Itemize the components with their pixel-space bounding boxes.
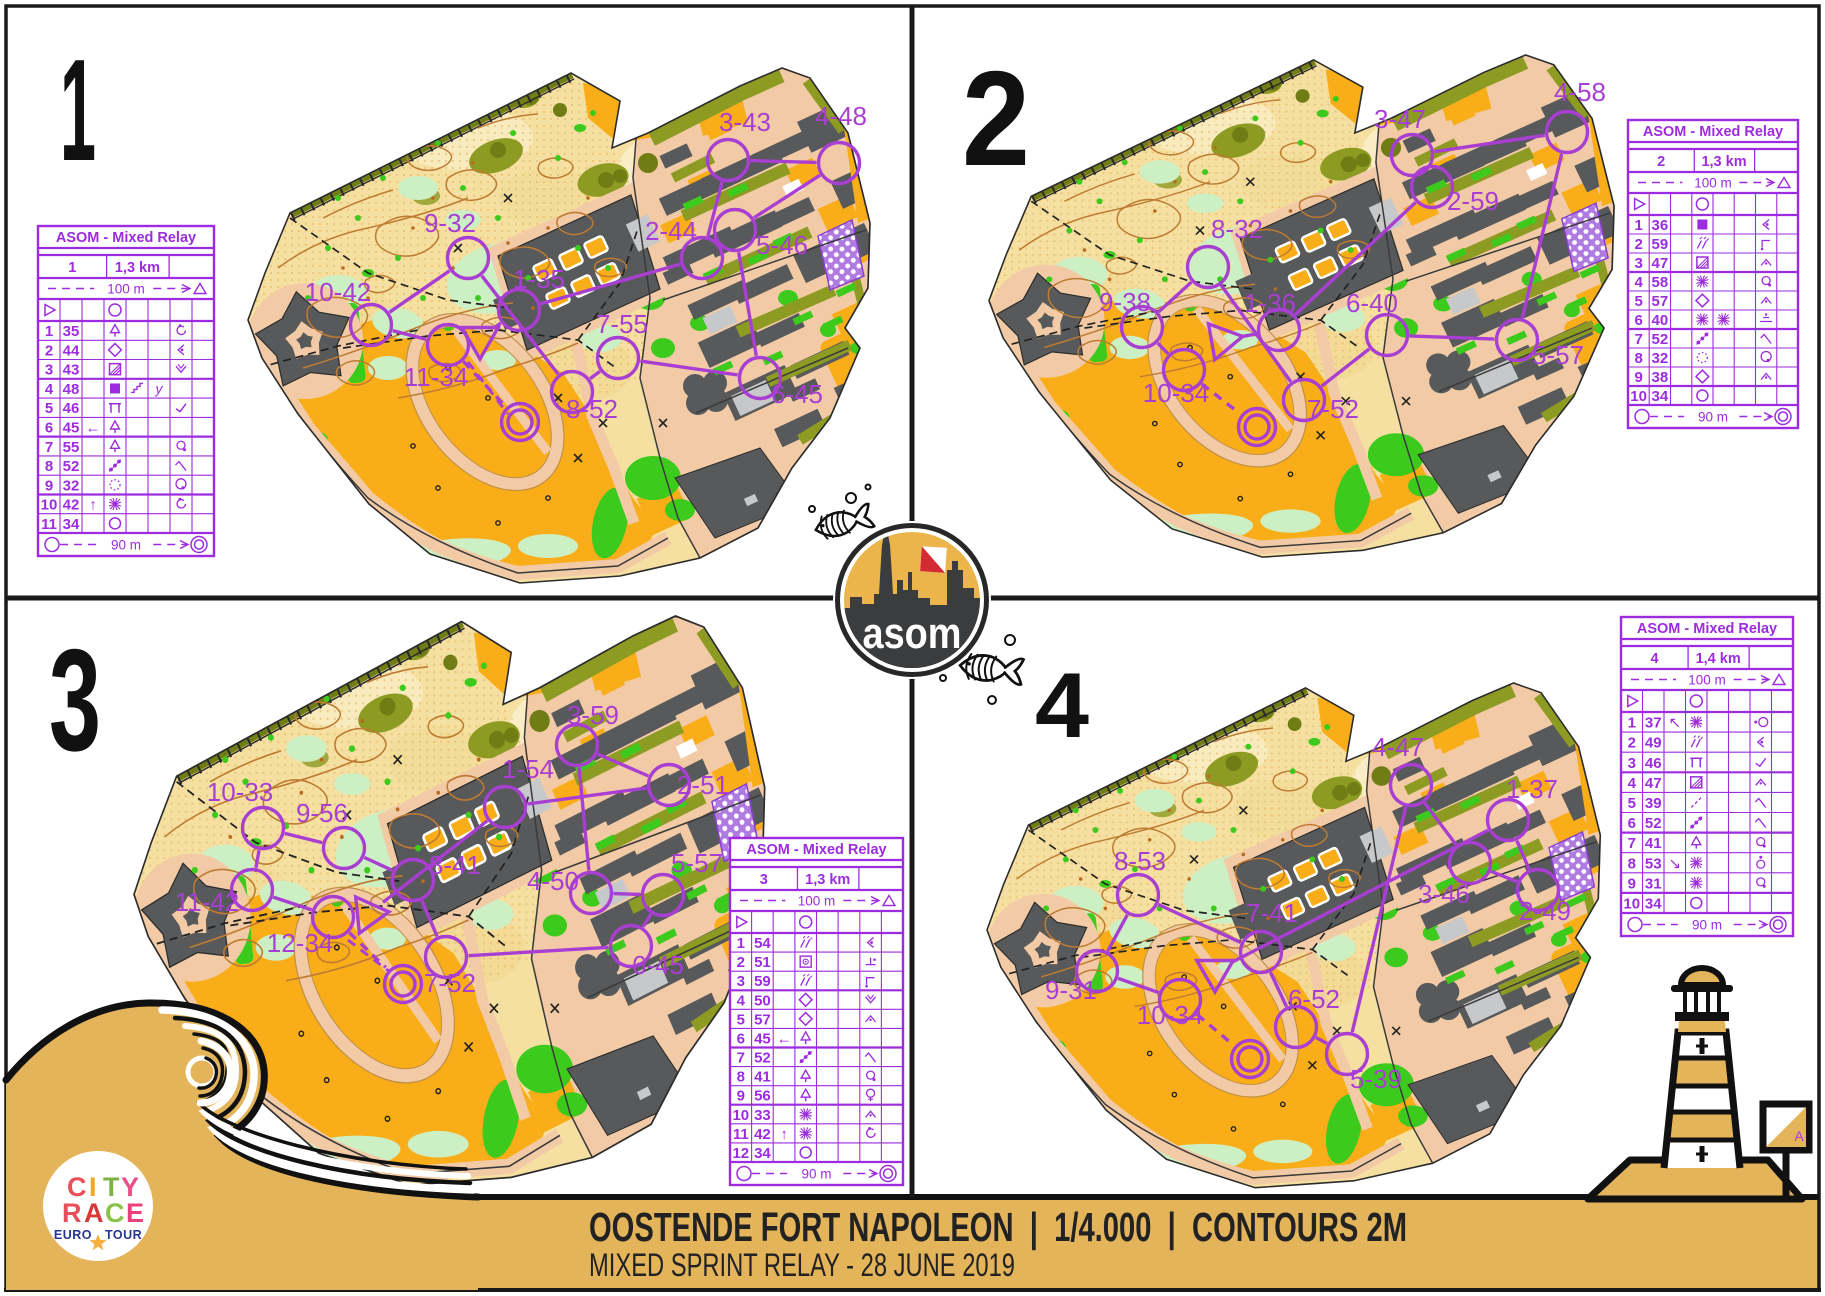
svg-text:2-49: 2-49 [1519, 896, 1571, 926]
svg-text:53: 53 [1645, 855, 1662, 872]
svg-text:3: 3 [45, 362, 53, 379]
svg-text:3: 3 [1628, 755, 1636, 772]
svg-text:11: 11 [41, 516, 57, 533]
svg-text:8: 8 [45, 458, 53, 475]
svg-text:10-33: 10-33 [207, 777, 274, 807]
svg-text:1-37: 1-37 [1506, 774, 1558, 804]
svg-text:9-32: 9-32 [424, 208, 476, 238]
svg-text:44: 44 [63, 342, 80, 359]
svg-text:7: 7 [737, 1050, 745, 1067]
svg-text:54: 54 [754, 935, 771, 952]
svg-text:6: 6 [45, 420, 53, 437]
svg-text:1,3 km: 1,3 km [805, 872, 850, 888]
svg-text:41: 41 [1645, 835, 1662, 852]
svg-text:↑: ↑ [780, 1126, 788, 1143]
svg-text:7-55: 7-55 [596, 309, 648, 339]
svg-text:90 m: 90 m [111, 538, 141, 553]
svg-text:10-42: 10-42 [305, 277, 372, 307]
svg-text:43: 43 [63, 362, 80, 379]
svg-text:1: 1 [45, 323, 53, 340]
svg-text:E: E [126, 1198, 145, 1228]
svg-text:90 m: 90 m [801, 1167, 831, 1182]
svg-text:4: 4 [1628, 775, 1637, 792]
svg-text:2-51: 2-51 [677, 770, 729, 800]
svg-text:7-52: 7-52 [1307, 394, 1359, 424]
svg-text:11-42: 11-42 [175, 887, 240, 917]
svg-text:5-46: 5-46 [756, 230, 808, 260]
svg-text:52: 52 [63, 458, 80, 475]
svg-text:6: 6 [1628, 815, 1636, 832]
svg-text:52: 52 [1652, 331, 1669, 348]
svg-text:5: 5 [1634, 293, 1642, 310]
svg-text:ASOM - Mixed Relay: ASOM - Mixed Relay [1637, 621, 1777, 637]
svg-text:5-57: 5-57 [671, 848, 723, 878]
svg-text:8-53: 8-53 [1114, 846, 1166, 876]
svg-text:46: 46 [63, 400, 80, 417]
svg-text:10-34: 10-34 [1143, 378, 1210, 408]
svg-text:47: 47 [1652, 255, 1669, 272]
svg-text:4-48: 4-48 [815, 101, 867, 131]
svg-text:6: 6 [1634, 312, 1642, 329]
svg-text:↘: ↘ [1668, 855, 1681, 872]
svg-text:45: 45 [63, 420, 80, 437]
svg-text:2: 2 [1634, 236, 1642, 253]
svg-text:49: 49 [1645, 735, 1662, 752]
svg-text:46: 46 [1645, 755, 1662, 772]
svg-text:A: A [1794, 1128, 1804, 1144]
svg-text:2: 2 [1628, 735, 1636, 752]
svg-text:4: 4 [45, 381, 54, 398]
svg-text:5: 5 [45, 400, 53, 417]
svg-text:37: 37 [1645, 715, 1662, 732]
svg-text:3-43: 3-43 [719, 107, 771, 137]
svg-text:41: 41 [754, 1069, 771, 1086]
svg-text:52: 52 [1645, 815, 1662, 832]
svg-text:3: 3 [760, 872, 768, 888]
svg-text:5: 5 [737, 1011, 745, 1028]
svg-text:34: 34 [1652, 388, 1669, 405]
svg-text:2: 2 [45, 342, 53, 359]
svg-text:TOUR: TOUR [105, 1228, 142, 1242]
svg-text:3: 3 [737, 973, 745, 990]
svg-text:11-34: 11-34 [404, 362, 469, 392]
svg-text:40: 40 [1652, 312, 1669, 329]
svg-text:1: 1 [737, 935, 745, 952]
svg-text:6: 6 [737, 1030, 745, 1047]
svg-text:7-52: 7-52 [424, 968, 476, 998]
svg-text:4: 4 [737, 992, 746, 1009]
svg-text:4-58: 4-58 [1554, 77, 1606, 107]
svg-text:9-56: 9-56 [296, 798, 348, 828]
svg-text:9-38: 9-38 [1099, 287, 1151, 317]
svg-text:32: 32 [1652, 350, 1669, 367]
svg-text:100 m: 100 m [107, 282, 145, 297]
svg-text:R: R [62, 1198, 83, 1228]
svg-text:4: 4 [1634, 274, 1643, 291]
svg-text:5-57: 5-57 [1532, 340, 1584, 370]
svg-text:4: 4 [1035, 655, 1089, 757]
svg-text:90 m: 90 m [1698, 410, 1728, 425]
svg-text:A: A [84, 1198, 105, 1228]
svg-text:3: 3 [1634, 255, 1642, 272]
svg-text:58: 58 [1652, 274, 1669, 291]
svg-text:2: 2 [1657, 154, 1665, 170]
svg-text:48: 48 [63, 381, 80, 398]
svg-text:4: 4 [1651, 651, 1659, 667]
svg-text:11: 11 [733, 1126, 749, 1143]
svg-text:35: 35 [63, 323, 80, 340]
svg-text:45: 45 [754, 1030, 771, 1047]
svg-text:1,4 km: 1,4 km [1696, 651, 1741, 667]
svg-text:50: 50 [754, 992, 771, 1009]
svg-text:7: 7 [1628, 835, 1636, 852]
svg-text:OOSTENDE FORT NAPOLEON | 1/4: OOSTENDE FORT NAPOLEON | 1/4.000 | CONTO… [589, 1204, 1407, 1250]
svg-text:6-45: 6-45 [632, 950, 684, 980]
svg-text:100 m: 100 m [1688, 673, 1726, 688]
svg-text:9: 9 [45, 477, 53, 494]
svg-text:8-41: 8-41 [429, 850, 481, 880]
svg-text:1,3 km: 1,3 km [1701, 154, 1746, 170]
svg-text:36: 36 [1652, 217, 1669, 234]
svg-text:32: 32 [63, 477, 80, 494]
svg-text:100 m: 100 m [1694, 176, 1732, 191]
svg-text:57: 57 [754, 1011, 771, 1028]
svg-text:5: 5 [1628, 795, 1636, 812]
svg-text:42: 42 [63, 497, 80, 514]
svg-text:10-34: 10-34 [1137, 1000, 1204, 1030]
svg-text:EURO: EURO [54, 1228, 92, 1242]
svg-text:7: 7 [1634, 331, 1642, 348]
svg-text:1-36: 1-36 [1244, 288, 1296, 318]
svg-text:asom: asom [863, 609, 962, 658]
svg-text:12-34: 12-34 [267, 928, 334, 958]
svg-text:3-59: 3-59 [567, 700, 619, 730]
svg-text:4-47: 4-47 [1372, 732, 1424, 762]
svg-text:5-39: 5-39 [1350, 1064, 1402, 1094]
svg-text:100 m: 100 m [798, 894, 836, 909]
svg-text:51: 51 [754, 954, 771, 971]
svg-text:2: 2 [962, 43, 1030, 194]
svg-text:3: 3 [49, 619, 101, 781]
svg-text:31: 31 [1645, 875, 1662, 892]
svg-text:12: 12 [732, 1145, 749, 1162]
svg-text:←: ← [777, 1030, 792, 1047]
svg-text:34: 34 [63, 516, 80, 533]
svg-text:6-45: 6-45 [771, 379, 823, 409]
svg-text:4-50: 4-50 [527, 866, 579, 896]
svg-text:y: y [155, 380, 164, 396]
svg-text:90 m: 90 m [1692, 918, 1722, 933]
svg-text:8: 8 [1634, 350, 1642, 367]
svg-text:56: 56 [754, 1088, 771, 1105]
svg-text:↑: ↑ [89, 497, 97, 514]
svg-text:10: 10 [1623, 895, 1640, 912]
svg-text:ASOM - Mixed Relay: ASOM - Mixed Relay [56, 230, 196, 246]
svg-text:1,3 km: 1,3 km [115, 260, 160, 276]
svg-text:1: 1 [1634, 217, 1642, 234]
svg-text:9: 9 [1634, 369, 1642, 386]
svg-text:47: 47 [1645, 775, 1662, 792]
svg-text:59: 59 [1652, 236, 1669, 253]
svg-text:9: 9 [1628, 875, 1636, 892]
svg-text:42: 42 [754, 1126, 771, 1143]
svg-text:8: 8 [737, 1069, 745, 1086]
svg-text:ASOM - Mixed Relay: ASOM - Mixed Relay [746, 842, 886, 858]
svg-text:57: 57 [1652, 293, 1669, 310]
svg-text:10: 10 [1630, 388, 1647, 405]
svg-text:8: 8 [1628, 855, 1636, 872]
svg-text:34: 34 [1645, 895, 1662, 912]
svg-text:3-47: 3-47 [1374, 104, 1426, 134]
svg-text:1-54: 1-54 [502, 754, 554, 784]
svg-text:6-52: 6-52 [1288, 984, 1340, 1014]
svg-text:6-40: 6-40 [1346, 288, 1398, 318]
svg-text:←: ← [86, 420, 101, 437]
svg-text:10: 10 [41, 497, 58, 514]
svg-text:1: 1 [1628, 715, 1636, 732]
svg-text:34: 34 [754, 1145, 771, 1162]
svg-text:52: 52 [754, 1050, 771, 1067]
svg-text:8-52: 8-52 [566, 394, 618, 424]
svg-text:9-31: 9-31 [1045, 975, 1097, 1005]
svg-text:8-32: 8-32 [1211, 214, 1263, 244]
svg-text:39: 39 [1645, 795, 1662, 812]
svg-text:↖: ↖ [1668, 715, 1681, 732]
svg-text:7-41: 7-41 [1246, 898, 1298, 928]
svg-text:2-59: 2-59 [1447, 186, 1499, 216]
svg-text:33: 33 [754, 1107, 771, 1124]
svg-text:9: 9 [737, 1088, 745, 1105]
svg-text:MIXED SPRINT RELAY - 28 JUNE 2: MIXED SPRINT RELAY - 28 JUNE 2019 [589, 1247, 1015, 1283]
svg-text:7: 7 [45, 439, 53, 456]
svg-text:2-44: 2-44 [645, 216, 697, 246]
svg-text:ASOM - Mixed Relay: ASOM - Mixed Relay [1643, 124, 1783, 140]
svg-text:C: C [105, 1198, 126, 1228]
svg-text:38: 38 [1652, 369, 1669, 386]
svg-text:1: 1 [60, 29, 96, 191]
svg-text:59: 59 [754, 973, 771, 990]
svg-text:55: 55 [63, 439, 80, 456]
svg-text:3-46: 3-46 [1418, 879, 1470, 909]
svg-text:10: 10 [732, 1107, 749, 1124]
svg-text:2: 2 [737, 954, 745, 971]
svg-text:1: 1 [68, 260, 76, 276]
svg-text:1-35: 1-35 [513, 264, 565, 294]
